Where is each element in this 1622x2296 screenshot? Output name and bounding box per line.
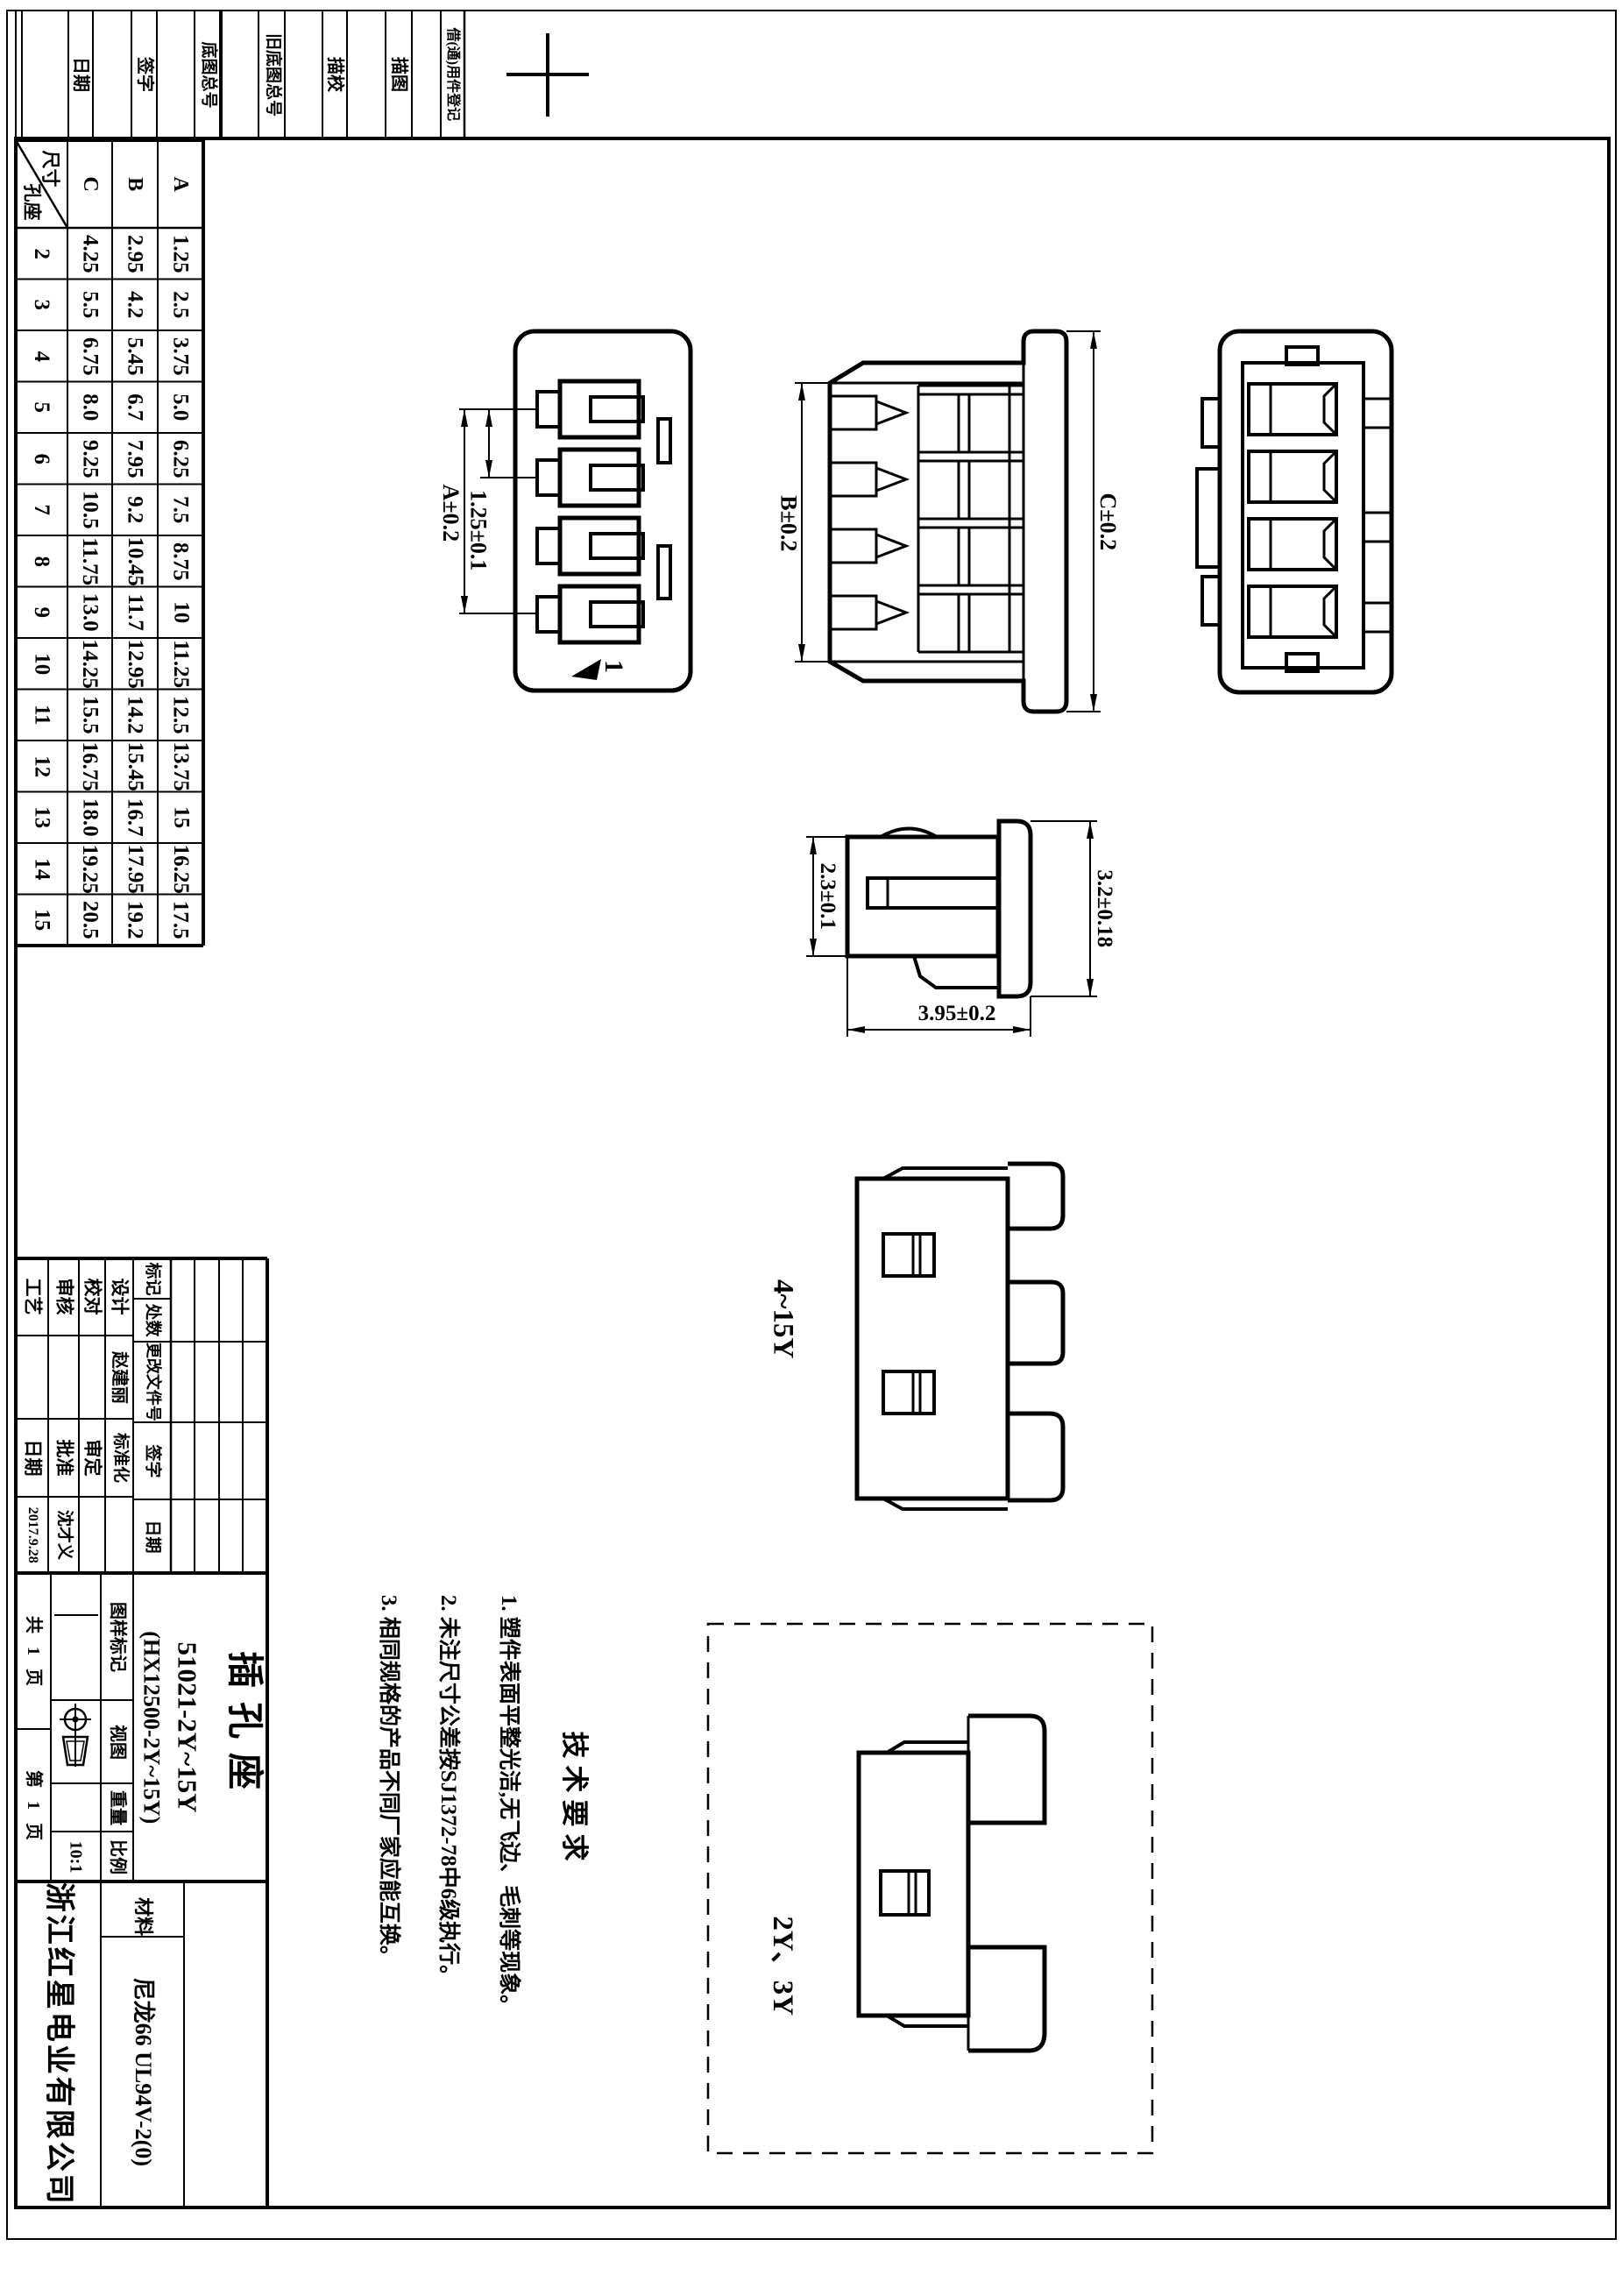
drawing-linework [0, 0, 1622, 2296]
drawing-sheet: 日期 签字 底图总号 旧底图总号 描校 描图 借(通)用件登记 尺寸 孔座 C … [0, 0, 1622, 2296]
